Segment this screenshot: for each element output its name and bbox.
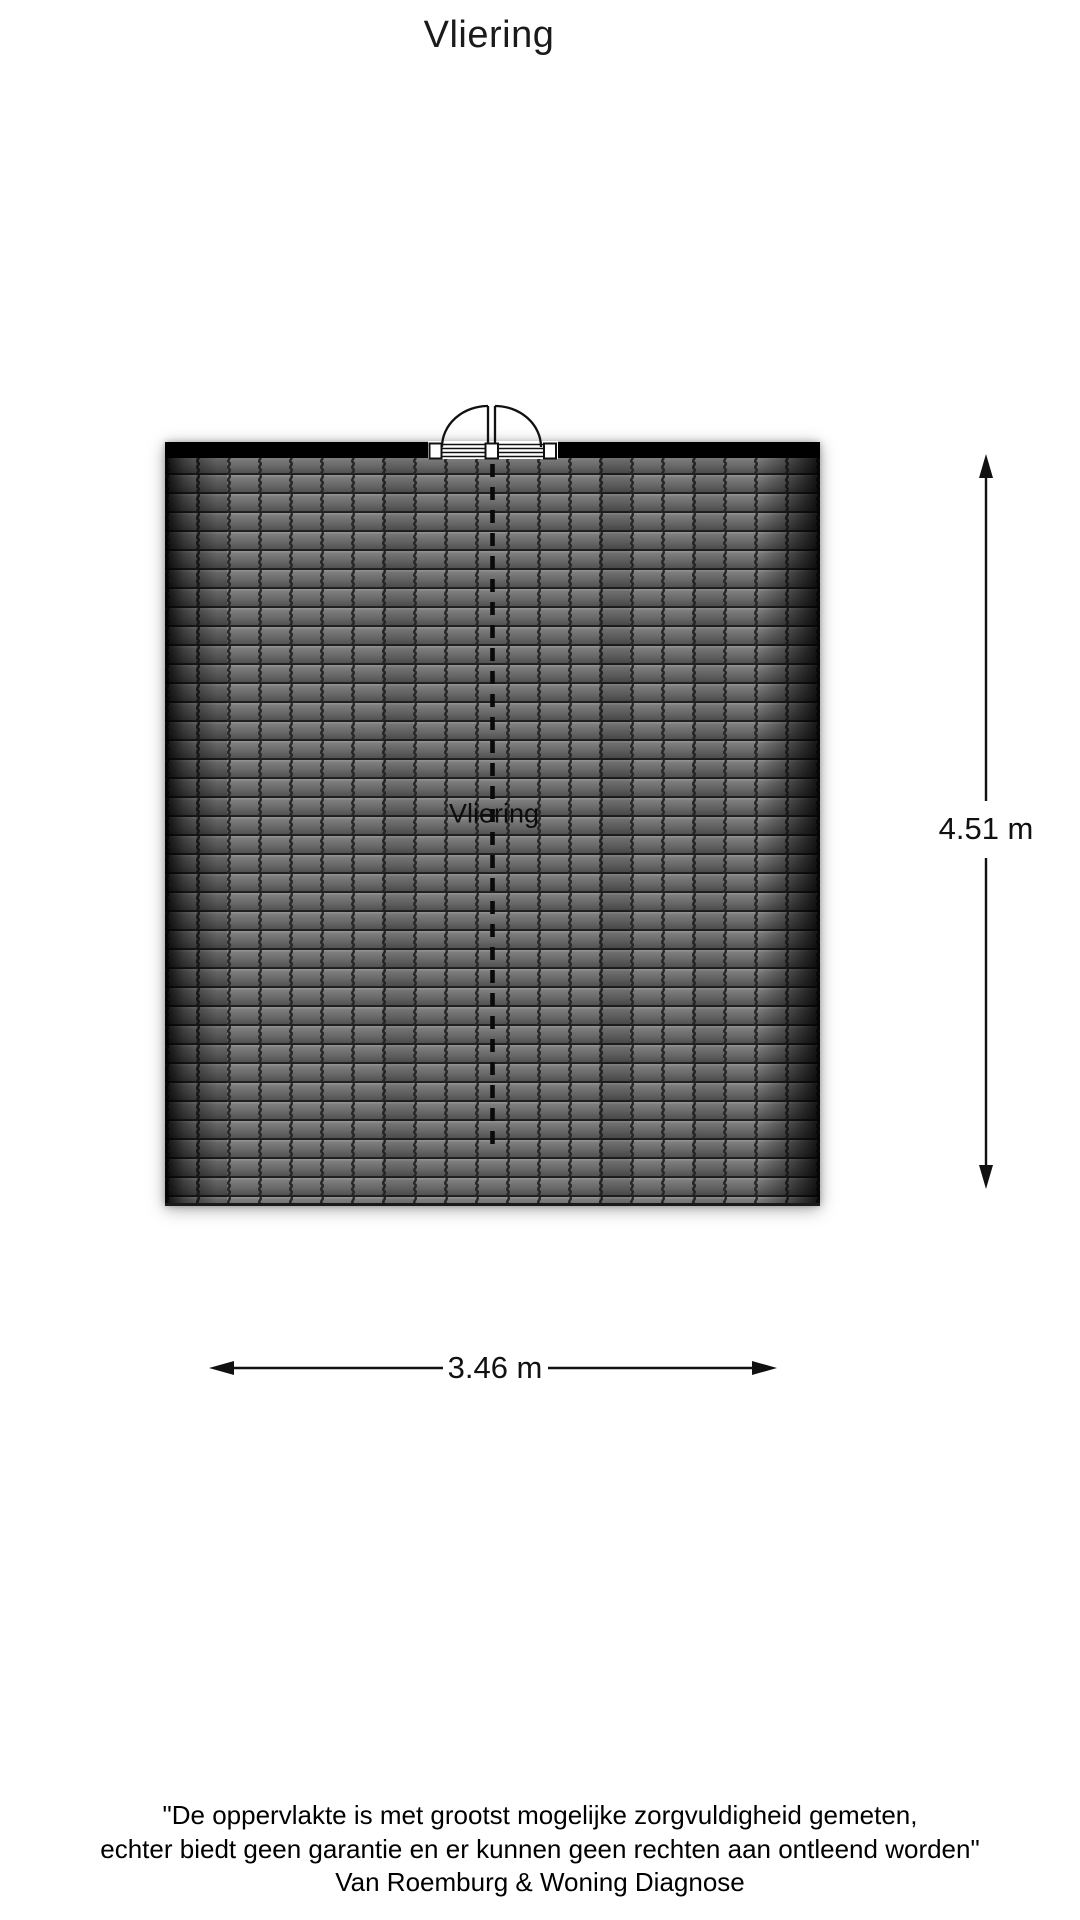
height-dimension-label: 4.51 m	[939, 811, 1034, 847]
room-label: Vliering	[449, 799, 539, 830]
disclaimer-line-1: "De oppervlakte is met grootst mogelijke…	[0, 1799, 1080, 1833]
width-dimension-label: 3.46 m	[448, 1350, 543, 1386]
disclaimer-footer: "De oppervlakte is met grootst mogelijke…	[0, 1799, 1080, 1900]
page-title: Vliering	[424, 14, 555, 57]
disclaimer-line-3: Van Roemburg & Woning Diagnose	[0, 1866, 1080, 1900]
floorplan-canvas	[0, 0, 1080, 1920]
double-door-icon	[428, 406, 558, 459]
disclaimer-line-2: echter biedt geen garantie en er kunnen …	[0, 1833, 1080, 1867]
